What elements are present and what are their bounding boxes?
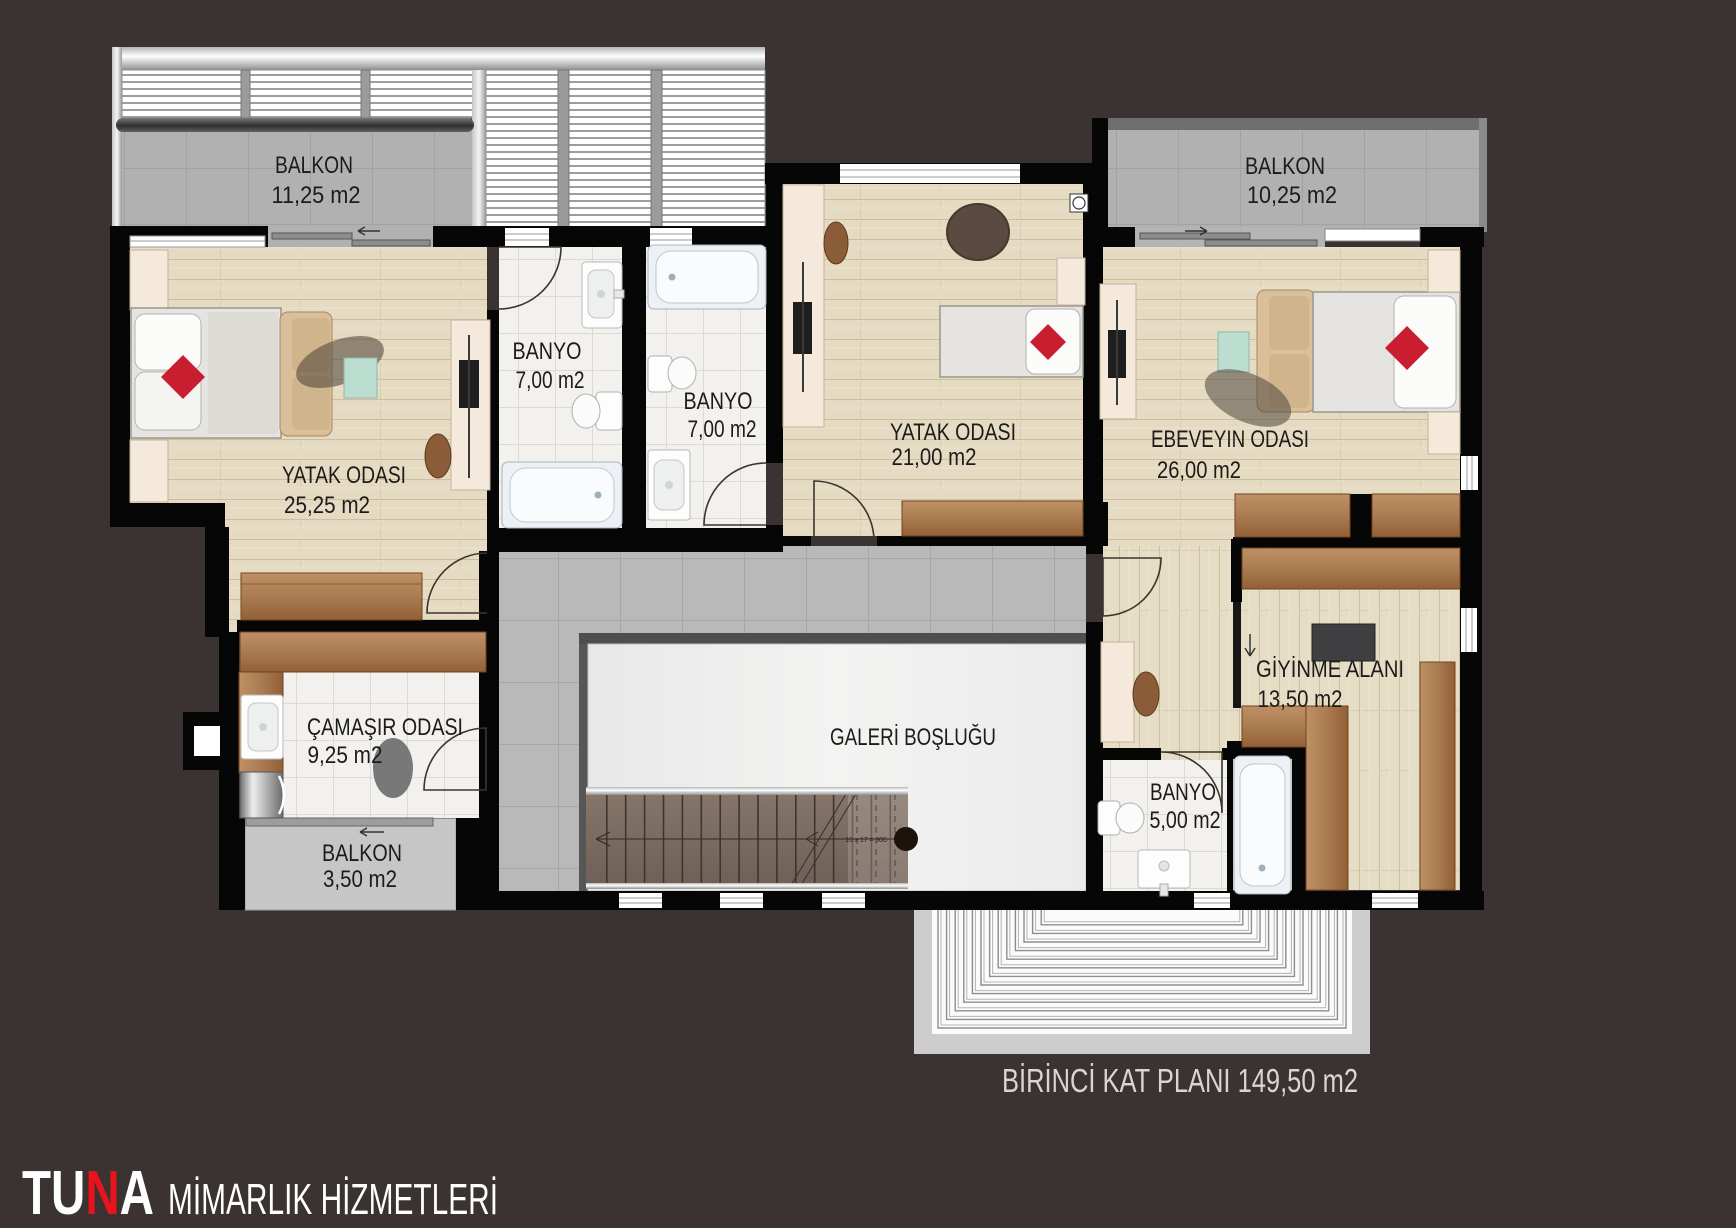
svg-text:11,25 m2: 11,25 m2 bbox=[272, 182, 361, 209]
svg-text:MİMARLIK HİZMETLERİ: MİMARLIK HİZMETLERİ bbox=[168, 1175, 498, 1224]
svg-text:GALERİ BOŞLUĞU: GALERİ BOŞLUĞU bbox=[830, 724, 996, 751]
svg-text:10,25 m2: 10,25 m2 bbox=[1247, 182, 1337, 209]
svg-text:BALKON: BALKON bbox=[322, 840, 402, 867]
svg-text:13,50 m2: 13,50 m2 bbox=[1258, 686, 1343, 713]
svg-text:16 x 17 = 306: 16 x 17 = 306 bbox=[845, 835, 887, 844]
svg-text:26,00 m2: 26,00 m2 bbox=[1157, 457, 1241, 484]
svg-text:BALKON: BALKON bbox=[275, 152, 353, 179]
svg-text:BALKON: BALKON bbox=[1245, 153, 1325, 180]
svg-text:BİRİNCİ KAT PLANI 149,50 m2: BİRİNCİ KAT PLANI 149,50 m2 bbox=[1002, 1062, 1358, 1099]
svg-text:3,50 m2: 3,50 m2 bbox=[323, 866, 397, 893]
svg-text:BANYO: BANYO bbox=[684, 388, 753, 415]
svg-text:ÇAMAŞIR ODASI: ÇAMAŞIR ODASI bbox=[307, 714, 463, 741]
svg-text:BANYO: BANYO bbox=[513, 338, 582, 365]
svg-text:EBEVEYIN ODASI: EBEVEYIN ODASI bbox=[1151, 426, 1309, 453]
svg-text:7,00 m2: 7,00 m2 bbox=[688, 416, 757, 443]
svg-text:25,25 m2: 25,25 m2 bbox=[284, 492, 370, 519]
svg-text:TUNA: TUNA bbox=[22, 1159, 154, 1228]
svg-text:YATAK ODASI: YATAK ODASI bbox=[890, 419, 1016, 446]
svg-text:BANYO: BANYO bbox=[1150, 779, 1216, 806]
svg-text:21,00 m2: 21,00 m2 bbox=[892, 444, 977, 471]
svg-text:5,00 m2: 5,00 m2 bbox=[1150, 807, 1221, 834]
svg-text:YATAK ODASI: YATAK ODASI bbox=[282, 462, 406, 489]
svg-text:7,00 m2: 7,00 m2 bbox=[516, 367, 585, 394]
svg-text:9,25 m2: 9,25 m2 bbox=[308, 742, 383, 769]
svg-text:GİYİNME ALANI: GİYİNME ALANI bbox=[1256, 656, 1404, 683]
